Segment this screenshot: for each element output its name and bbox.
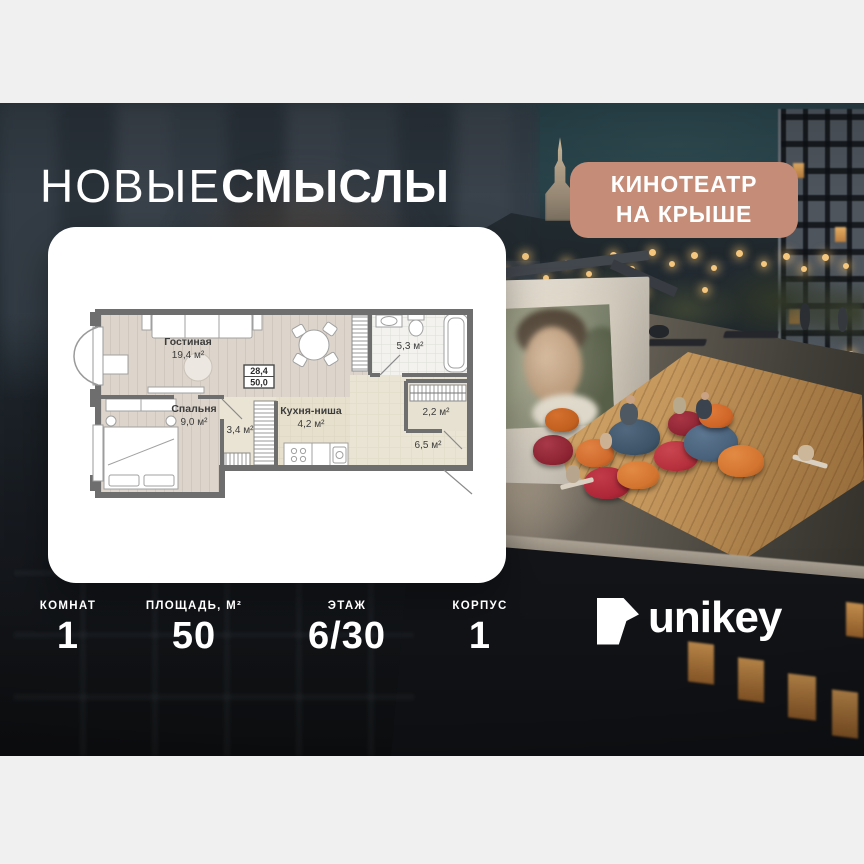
apartment-stats: КОМНАТ 1 ПЛОЩАДЬ, М² 50 ЭТАЖ 6/30 КОРПУС… xyxy=(0,600,540,670)
room-living-name: Гостиная xyxy=(164,336,211,348)
stat-floor-label: ЭТАЖ xyxy=(308,600,386,612)
entrance-door xyxy=(444,470,472,494)
unikey-logo-icon xyxy=(597,598,639,645)
stat-floor-value: 6/30 xyxy=(308,615,386,658)
title-bold-part: СМЫСЛЫ xyxy=(221,160,449,212)
stat-building-value: 1 xyxy=(452,615,507,658)
room-bedroom-name: Спальня xyxy=(171,403,216,415)
badge-line1: КИНОТЕАТР xyxy=(611,170,758,200)
floor-plan-card[interactable]: 28,4 50,0 Гостиная 19,4 м² Спальня 9,0 м… xyxy=(48,227,506,583)
room-hallway-area: 6,5 м² xyxy=(415,440,443,451)
room-living-area: 19,4 м² xyxy=(172,350,205,361)
ad-canvas: НОВЫЕСМЫСЛЫ КИНОТЕАТР НА КРЫШЕ xyxy=(0,0,864,864)
stat-building: КОРПУС 1 xyxy=(452,600,507,658)
rooftop-cinema-badge: КИНОТЕАТР НА КРЫШЕ xyxy=(570,162,798,238)
badge-line2: НА КРЫШЕ xyxy=(616,200,752,230)
stat-rooms: КОМНАТ 1 xyxy=(40,600,96,658)
stat-rooms-value: 1 xyxy=(40,615,96,658)
total-area-value: 50,0 xyxy=(250,378,268,388)
area-summary-box: 28,4 50,0 xyxy=(244,365,274,388)
room-kitchen-name: Кухня-ниша xyxy=(280,405,342,417)
floor-plan: 28,4 50,0 Гостиная 19,4 м² Спальня 9,0 м… xyxy=(48,227,506,581)
developer-logo: unikey xyxy=(597,596,781,646)
room-closet-area: 2,2 м² xyxy=(423,407,451,418)
project-title: НОВЫЕСМЫСЛЫ xyxy=(40,163,449,209)
stat-area: ПЛОЩАДЬ, М² 50 xyxy=(146,600,242,658)
room-bedroom-area: 9,0 м² xyxy=(181,417,209,428)
stat-floor: ЭТАЖ 6/30 xyxy=(308,600,386,658)
unikey-logo-text: unikey xyxy=(648,596,781,646)
room-kitchen-area: 4,2 м² xyxy=(298,419,326,430)
living-area-value: 28,4 xyxy=(250,366,268,376)
room-hall-area: 3,4 м² xyxy=(227,425,255,436)
stat-rooms-label: КОМНАТ xyxy=(40,600,96,612)
title-light-part: НОВЫЕ xyxy=(40,160,221,212)
stat-building-label: КОРПУС xyxy=(452,600,507,612)
stat-area-label: ПЛОЩАДЬ, М² xyxy=(146,600,242,612)
stat-area-value: 50 xyxy=(146,615,242,658)
room-bathroom-area: 5,3 м² xyxy=(397,341,425,352)
